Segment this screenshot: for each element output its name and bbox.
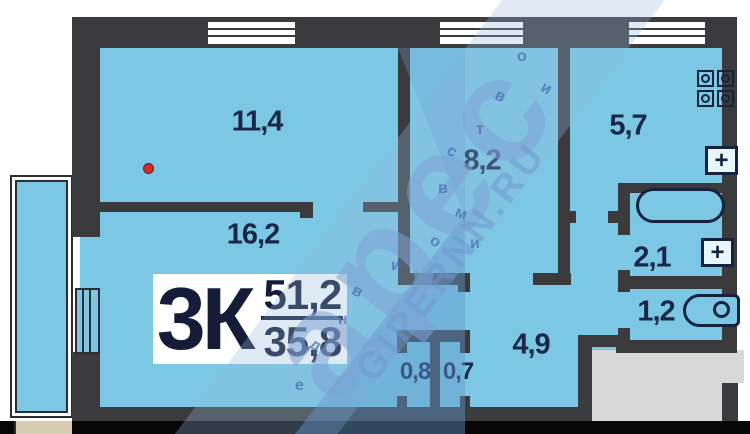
wall-outer-right-lower [722,383,738,422]
wall-closet-stub-right [460,396,470,407]
window-icon [440,22,523,44]
stove-burner [697,70,714,87]
room-area-label: 2,1 [633,242,670,275]
balcony-below-patch [14,421,72,434]
plus-box-icon: + [705,146,738,175]
window-icon [208,22,295,44]
wall-closet-cap-left [397,342,407,353]
wall-outer-bottom [72,407,592,422]
room-area-label: 8,2 [463,145,500,178]
wall-closet-divider [430,342,440,407]
stairwell-landing-tab [722,350,744,383]
room-area-label: 0,7 [443,358,473,386]
room-area-label: 0,8 [400,358,430,386]
plus-symbol: + [710,241,724,265]
room-area-label: 5,7 [609,110,646,143]
wall-door-jamb [608,211,618,223]
area-fraction: 51,2 35,8 [261,275,343,364]
toilet-bowl-circle [713,301,730,318]
wall-vertical-main [398,48,410,285]
wall-bath-toilet-divider [618,276,737,289]
wall-room82-bottom-right [533,273,571,285]
toilet-icon [683,294,740,327]
stove-burner [717,90,734,107]
wall-entry-top [578,335,618,347]
bottom-black-bar [0,421,750,434]
wall-outer-left-upper [72,17,100,237]
apartment-summary-box: 3К 51,2 35,8 [153,274,347,364]
stove-burner [717,70,734,87]
room-area-label: 11,4 [232,106,283,139]
room-area-label: 1,2 [637,296,674,329]
living-area: 35,8 [261,320,343,364]
wall-door-jamb [300,210,313,218]
balcony-window-icon [75,288,100,354]
wall-room82-kitchen [558,48,570,273]
wall-door-jamb [458,283,470,292]
wall-closet-stub-left [397,396,407,407]
window-icon [629,22,705,44]
red-marker-dot [143,163,154,174]
wall-outer-left-lower [72,352,100,412]
floor-plan: + + 11,4 16,2 8,2 5,7 2,1 1,2 4,9 0,8 0,… [0,0,750,434]
stairwell-landing [592,350,738,421]
wall-sanitary-bottom [616,340,737,353]
wall-room-divider [100,202,313,212]
plus-symbol: + [714,149,728,173]
balcony [10,175,73,418]
balcony-inner [15,180,68,413]
wall-bath-left-upper [618,193,630,235]
apartment-type-label: 3К [157,276,252,362]
room-area-label: 4,9 [512,329,549,362]
plus-box-icon: + [701,238,734,267]
room-area-label: 16,2 [227,219,279,252]
stove-icon [697,70,737,110]
wall-closet-cap-right [460,342,470,353]
bathtub-icon [636,188,725,223]
wall-entry-side [578,347,592,421]
stove-burner [697,90,714,107]
total-area: 51,2 [261,275,343,320]
wall-door-jamb [558,211,576,223]
wall-closet-top [397,330,470,342]
